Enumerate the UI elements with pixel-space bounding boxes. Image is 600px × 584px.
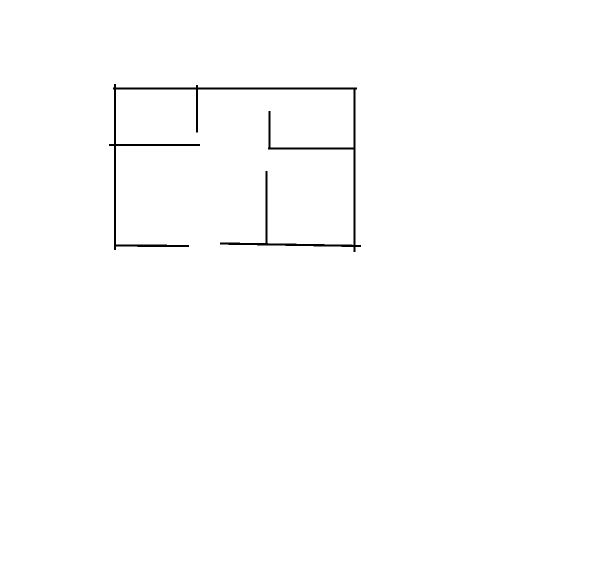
outer-wall-bottom-left-segment	[114, 246, 189, 247]
floor-plan-sketch	[0, 0, 600, 584]
drawing-canvas	[0, 0, 600, 584]
outer-wall-bottom-right-segment	[220, 244, 361, 247]
